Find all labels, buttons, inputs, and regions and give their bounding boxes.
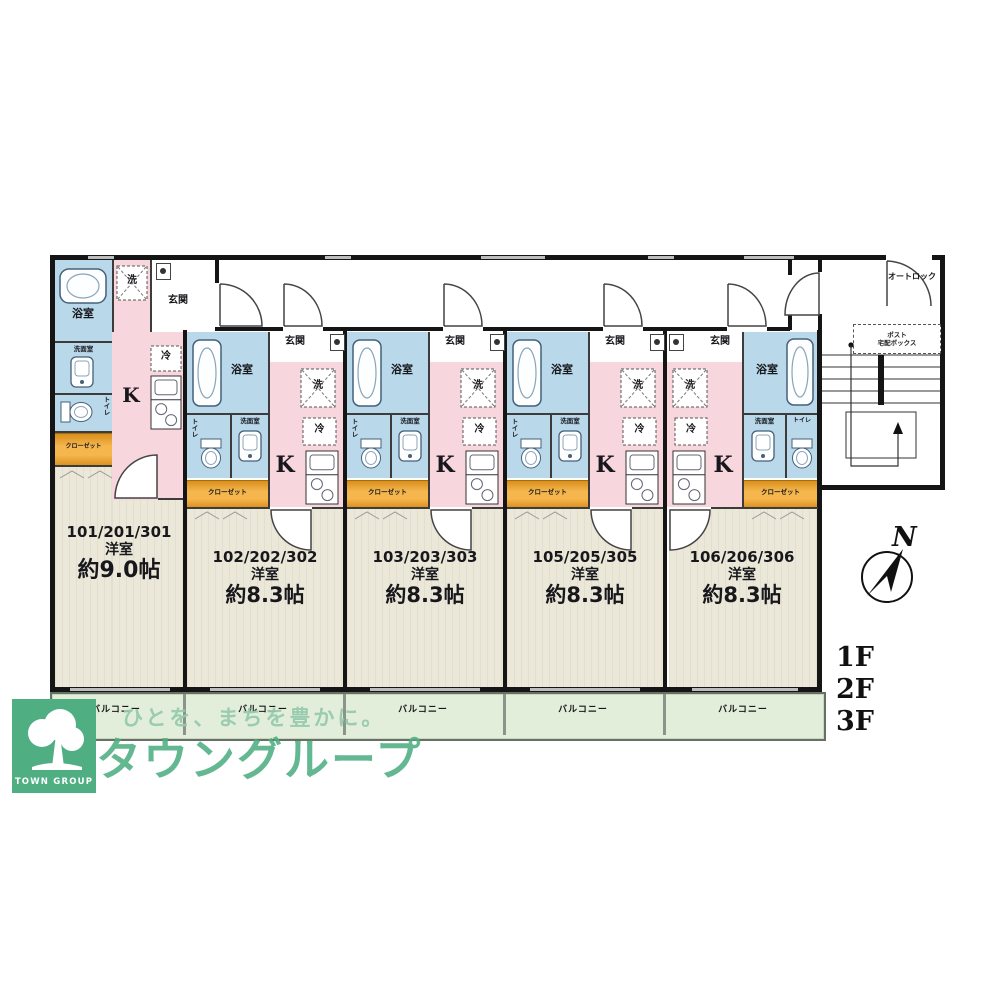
washroom-label: 洗面室 bbox=[55, 346, 112, 353]
balcony-divider bbox=[663, 694, 666, 735]
kitchen-label: K bbox=[272, 454, 298, 477]
unit-label: 105/205/305 洋室 約8.3帖 bbox=[517, 550, 653, 606]
unit-room-type: 洋室 bbox=[357, 568, 493, 583]
toilet-label: トイレ bbox=[509, 418, 519, 438]
room-door-arc bbox=[590, 509, 632, 551]
wall-inner bbox=[428, 332, 430, 507]
room-door-arc bbox=[270, 509, 312, 551]
bath-label: 浴室 bbox=[746, 364, 788, 376]
kitchen-counter-icon bbox=[150, 375, 182, 430]
toilet-icon bbox=[60, 400, 94, 424]
unit-room-type: 洋室 bbox=[55, 543, 183, 558]
stairhall-door-arc bbox=[784, 272, 820, 316]
floor-list: 1F 2F 3F bbox=[836, 642, 926, 738]
room-door-arc bbox=[430, 509, 472, 551]
washer-label: 洗 bbox=[116, 276, 148, 287]
unit-label: 106/206/306 洋室 約8.3帖 bbox=[672, 550, 812, 606]
fridge-label: 冷 bbox=[150, 352, 182, 363]
brand-company-jp: タウングループ bbox=[96, 723, 422, 788]
kitchen-counter-icon bbox=[305, 450, 339, 505]
bathtub-icon bbox=[786, 338, 814, 406]
wall-inner bbox=[472, 507, 503, 509]
unit-entrance-door-arc bbox=[219, 283, 263, 327]
unit-size: 約8.3帖 bbox=[197, 584, 333, 606]
wall-inner bbox=[187, 507, 270, 509]
unit-number: 101/201/301 bbox=[55, 525, 183, 541]
closet-door-mark bbox=[353, 510, 413, 520]
entrance-label: 玄関 bbox=[273, 337, 317, 348]
wall-inner bbox=[158, 498, 183, 500]
wall-corridor bbox=[643, 327, 727, 331]
window bbox=[692, 688, 798, 691]
toilet-label: トイレ bbox=[101, 396, 111, 416]
wall-inner bbox=[150, 260, 152, 332]
meter-box-icon bbox=[330, 334, 345, 351]
unit-entrance-door-arc bbox=[603, 283, 643, 327]
room-door-arc bbox=[114, 454, 158, 499]
toilet-label: トイレ bbox=[787, 418, 817, 424]
sink-icon bbox=[70, 356, 94, 388]
unit-label: 102/202/302 洋室 約8.3帖 bbox=[197, 550, 333, 606]
entrance-label: 玄関 bbox=[156, 296, 200, 307]
floor-label: 2F bbox=[836, 674, 926, 706]
entrance-label: 玄関 bbox=[593, 337, 637, 348]
window bbox=[744, 256, 794, 259]
meter-box-icon bbox=[490, 334, 505, 351]
wall-inner bbox=[347, 507, 430, 509]
window bbox=[530, 688, 640, 691]
wall-inner bbox=[632, 507, 663, 509]
toilet-icon bbox=[519, 438, 543, 470]
wall-corridor bbox=[323, 327, 443, 331]
closet-door-mark bbox=[58, 469, 118, 479]
toilet-label: トイレ bbox=[349, 418, 359, 438]
wall-inner bbox=[711, 507, 744, 509]
window bbox=[370, 688, 480, 691]
sink-icon bbox=[751, 430, 775, 462]
window bbox=[70, 688, 170, 691]
closet-door-mark bbox=[750, 510, 810, 520]
unit-number: 106/206/306 bbox=[672, 550, 812, 566]
window bbox=[648, 256, 674, 259]
washer-label: 洗 bbox=[620, 381, 656, 392]
bath-label: 浴室 bbox=[217, 364, 267, 376]
window bbox=[325, 256, 351, 259]
wall-stairhall bbox=[818, 260, 822, 272]
meter-box-icon bbox=[669, 334, 684, 351]
compass: N bbox=[854, 518, 926, 606]
tree-icon bbox=[20, 705, 88, 771]
wall-corridor bbox=[483, 327, 603, 331]
north-label: N bbox=[891, 522, 918, 553]
window bbox=[481, 256, 545, 259]
kitchen-label: K bbox=[118, 385, 144, 406]
closet-label: クローゼット bbox=[347, 489, 428, 496]
toilet-icon bbox=[199, 438, 223, 470]
closet-label: クローゼット bbox=[187, 489, 268, 496]
wall-stairhall bbox=[818, 314, 822, 330]
unit-entrance-door-arc bbox=[283, 283, 323, 327]
fridge-label: 冷 bbox=[622, 425, 657, 436]
closet-door-mark bbox=[513, 510, 573, 520]
wall-corridor bbox=[767, 327, 790, 331]
kitchen-label: K bbox=[432, 454, 458, 477]
kitchen-label: K bbox=[710, 454, 736, 477]
fridge-label: 冷 bbox=[462, 425, 497, 436]
closet-door-mark bbox=[193, 510, 253, 520]
washer-label: 洗 bbox=[672, 381, 708, 392]
washroom-label: 洗面室 bbox=[552, 418, 588, 425]
closet-label: クローゼット bbox=[744, 489, 817, 496]
unit-size: 約8.3帖 bbox=[357, 584, 493, 606]
wall-inner bbox=[268, 332, 270, 507]
fridge-label: 冷 bbox=[302, 425, 337, 436]
unit-entrance-door-arc bbox=[443, 283, 483, 327]
town-group-logo: TOWN GROUP bbox=[12, 699, 96, 793]
unit-label: 101/201/301 洋室 約9.0帖 bbox=[55, 525, 183, 583]
bathtub-icon bbox=[59, 268, 107, 304]
balcony-label: バルコニー bbox=[543, 706, 623, 715]
wall-inner bbox=[507, 507, 590, 509]
washer-label: 洗 bbox=[460, 381, 496, 392]
toilet-label: トイレ bbox=[189, 418, 199, 438]
unit-number: 103/203/303 bbox=[357, 550, 493, 566]
fridge-label: 冷 bbox=[674, 425, 708, 436]
autolock-label: オートロック bbox=[888, 273, 942, 281]
unit-room-type: 洋室 bbox=[197, 568, 333, 583]
floor-label: 3F bbox=[836, 706, 926, 738]
closet-label: クローゼット bbox=[507, 489, 588, 496]
toilet-icon bbox=[359, 438, 383, 470]
floor-label: 1F bbox=[836, 642, 926, 674]
window bbox=[88, 256, 114, 259]
washroom-label: 洗面室 bbox=[392, 418, 428, 425]
bath-label: 浴室 bbox=[537, 364, 587, 376]
wall-inner bbox=[588, 332, 590, 507]
floor-plan: オートロック ポスト 宅配ボックス バルコニー バルコニー バルコニー バルコニ… bbox=[0, 0, 1000, 1000]
washer-label: 洗 bbox=[300, 381, 336, 392]
room-door-arc bbox=[669, 509, 711, 551]
kitchen-counter-icon bbox=[672, 450, 706, 505]
washroom-label: 洗面室 bbox=[744, 418, 785, 425]
wall-corridor bbox=[215, 327, 283, 331]
sink-icon bbox=[398, 430, 422, 462]
bath-label: 浴室 bbox=[377, 364, 427, 376]
unit-entrance-door-arc bbox=[727, 283, 767, 327]
unit-room-type: 洋室 bbox=[672, 568, 812, 583]
sink-icon bbox=[238, 430, 262, 462]
unit-size: 約8.3帖 bbox=[672, 584, 812, 606]
wall-inner bbox=[744, 507, 818, 509]
washroom-label: 洗面室 bbox=[232, 418, 268, 425]
wall-101-entry bbox=[215, 260, 219, 283]
balcony-divider bbox=[503, 694, 506, 735]
unit-room-type: 洋室 bbox=[517, 568, 653, 583]
bath-label: 浴室 bbox=[57, 308, 109, 320]
wall-inner bbox=[312, 507, 343, 509]
kitchen-counter-icon bbox=[625, 450, 659, 505]
autolock-door-arc bbox=[886, 260, 932, 308]
stairs bbox=[822, 330, 940, 488]
unit-size: 約8.3帖 bbox=[517, 584, 653, 606]
window bbox=[210, 688, 320, 691]
sink-icon bbox=[558, 430, 582, 462]
kitchen-counter-icon bbox=[465, 450, 499, 505]
meter-box-icon bbox=[650, 334, 665, 351]
unit-label: 103/203/303 洋室 約8.3帖 bbox=[357, 550, 493, 606]
brand-company-en: TOWN GROUP bbox=[12, 777, 96, 787]
balcony-label: バルコニー bbox=[703, 706, 783, 715]
wall-right bbox=[940, 255, 945, 490]
meter-box-icon bbox=[156, 263, 171, 280]
balcony-label: バルコニー bbox=[383, 706, 463, 715]
unit-number: 105/205/305 bbox=[517, 550, 653, 566]
toilet-icon bbox=[790, 438, 814, 470]
unit-size: 約9.0帖 bbox=[55, 559, 183, 582]
entrance-label: 玄関 bbox=[698, 337, 742, 348]
unit-number: 102/202/302 bbox=[197, 550, 333, 566]
closet-label: クローゼット bbox=[55, 444, 112, 450]
kitchen-label: K bbox=[592, 454, 618, 477]
entrance-label: 玄関 bbox=[433, 337, 477, 348]
